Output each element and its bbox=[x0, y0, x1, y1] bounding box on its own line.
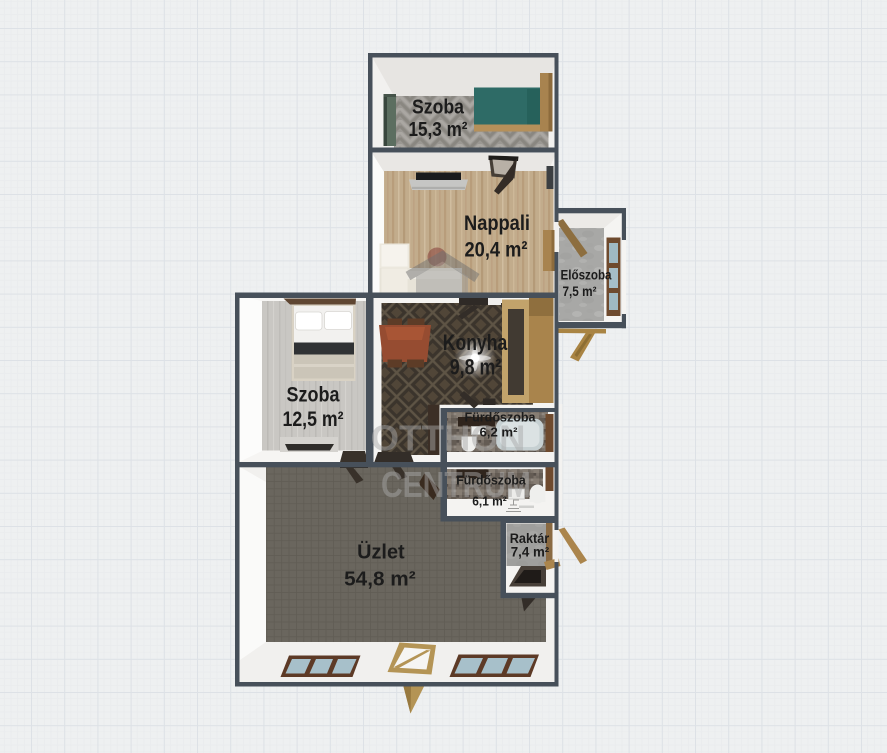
svg-text:7,5 m²: 7,5 m² bbox=[563, 284, 597, 299]
svg-text:6,2 m²: 6,2 m² bbox=[480, 425, 519, 440]
svg-text:Előszoba: Előszoba bbox=[561, 268, 612, 283]
svg-text:Szoba: Szoba bbox=[287, 384, 340, 407]
svg-text:6,1 m²: 6,1 m² bbox=[472, 494, 507, 509]
svg-text:7,4 m²: 7,4 m² bbox=[511, 545, 550, 560]
svg-text:20,4 m²: 20,4 m² bbox=[465, 238, 528, 262]
svg-text:Szoba: Szoba bbox=[412, 97, 465, 119]
svg-text:Nappali: Nappali bbox=[464, 211, 530, 235]
svg-text:Fürdőszoba: Fürdőszoba bbox=[465, 410, 537, 425]
svg-text:Fürdőszoba: Fürdőszoba bbox=[456, 473, 526, 488]
svg-text:Üzlet: Üzlet bbox=[357, 541, 405, 564]
svg-text:Konyha: Konyha bbox=[443, 330, 508, 355]
svg-text:15,3 m²: 15,3 m² bbox=[409, 119, 468, 141]
svg-text:9,8 m²: 9,8 m² bbox=[450, 355, 502, 380]
svg-text:54,8 m²: 54,8 m² bbox=[344, 568, 416, 591]
svg-text:12,5 m²: 12,5 m² bbox=[283, 408, 344, 431]
